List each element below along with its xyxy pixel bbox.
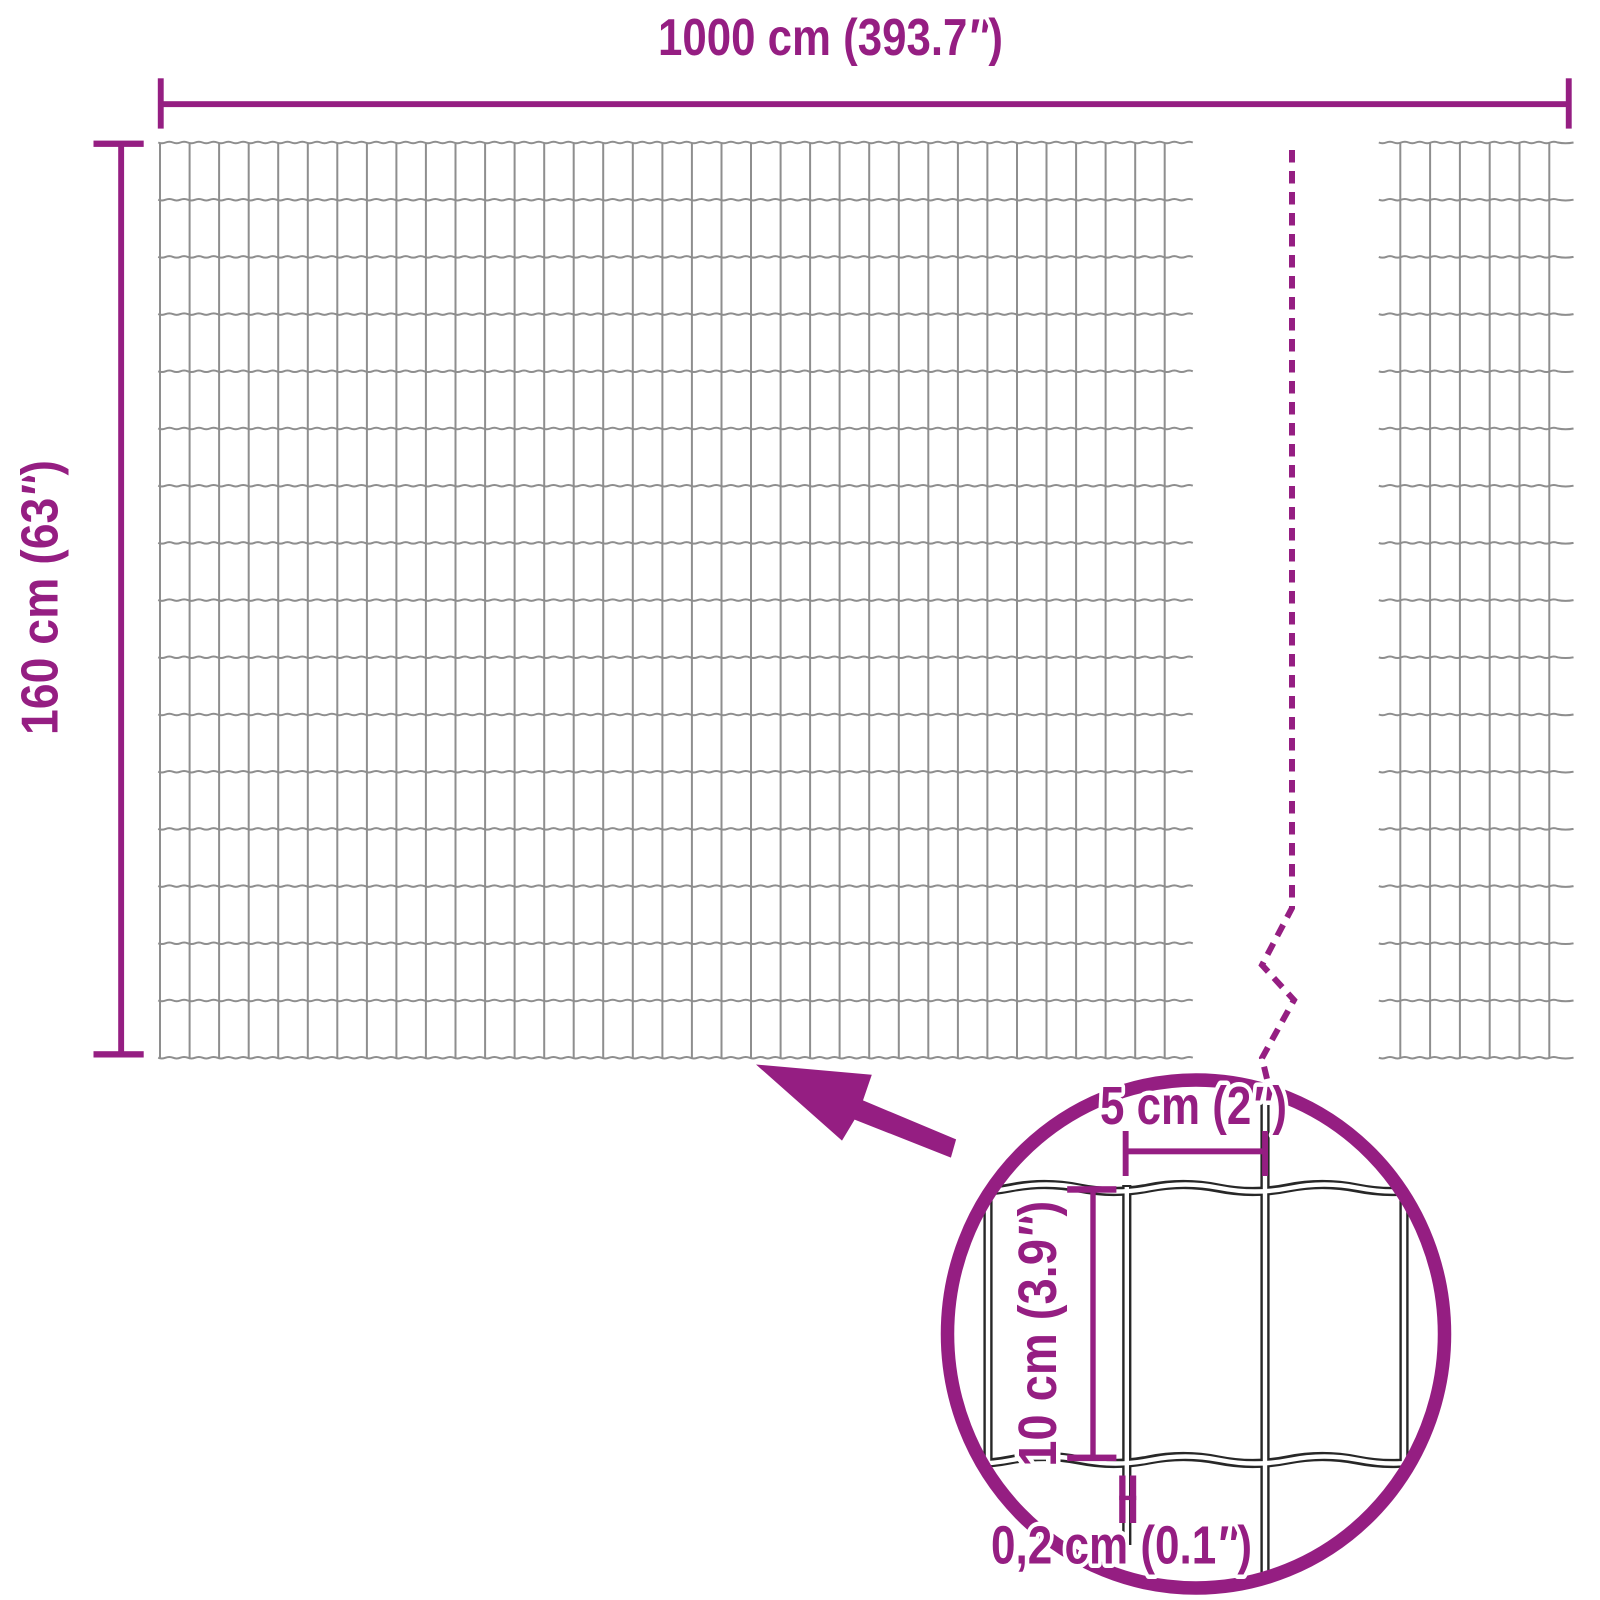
svg-text:10 cm (3.9″): 10 cm (3.9″) <box>1008 1201 1068 1467</box>
svg-text:1000 cm (393.7″): 1000 cm (393.7″) <box>658 9 1003 67</box>
svg-text:160 cm (63″): 160 cm (63″) <box>12 460 70 735</box>
svg-text:0,2 cm (0.1″): 0,2 cm (0.1″) <box>991 1516 1252 1576</box>
svg-text:5 cm (2″): 5 cm (2″) <box>1100 1076 1287 1136</box>
